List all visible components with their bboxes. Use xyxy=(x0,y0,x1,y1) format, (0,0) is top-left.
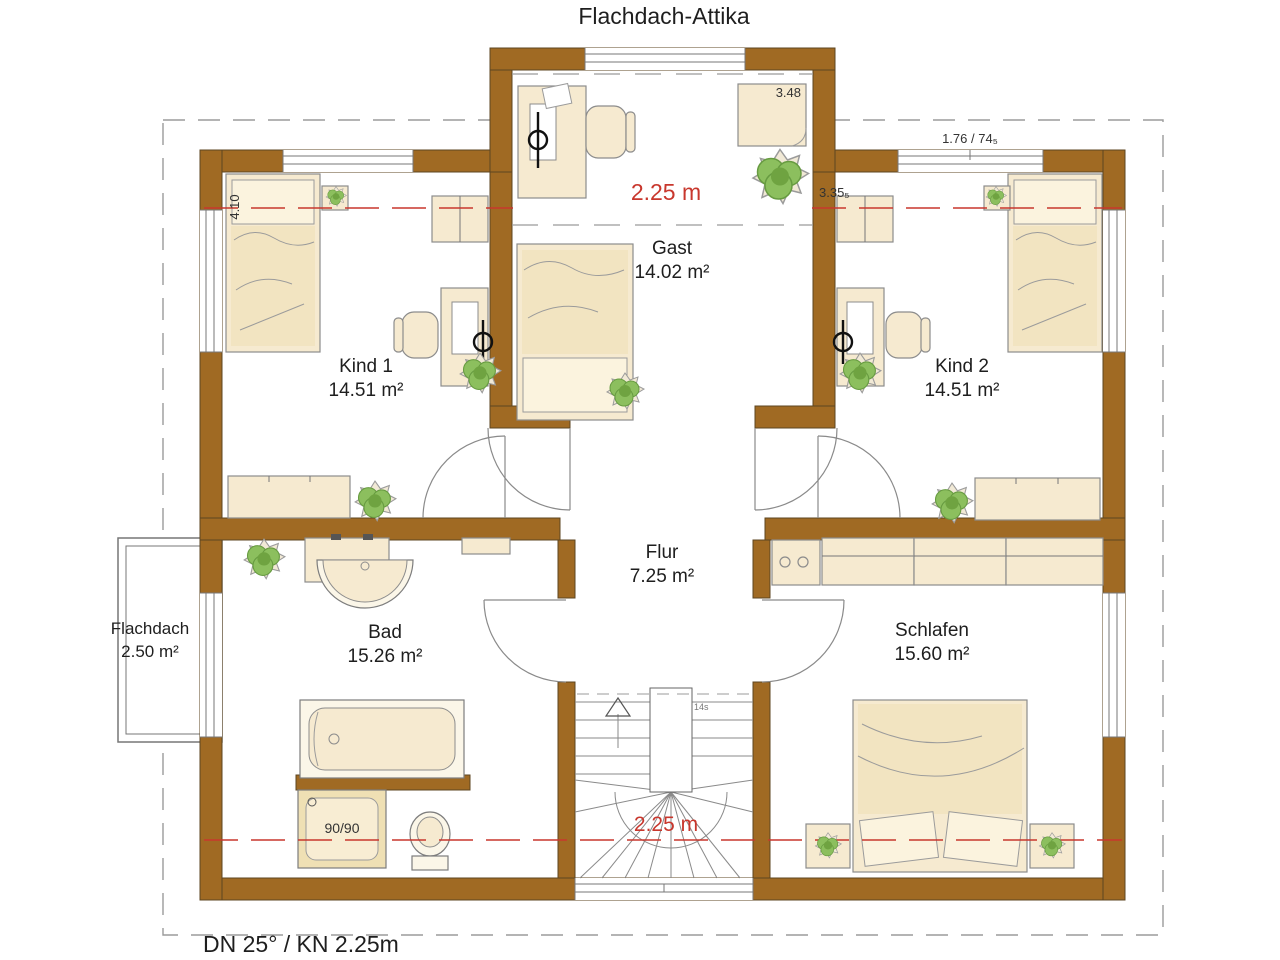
room-label-kind2-name: Kind 2 xyxy=(935,356,989,377)
door-gast-left xyxy=(488,428,570,510)
shelf-bad xyxy=(462,538,510,554)
floor-plan-page: Flachdach-Attika DN 25° / KN 2.25m Kind … xyxy=(0,0,1280,960)
sideboard-kind1 xyxy=(228,476,350,518)
chair-kind1 xyxy=(402,312,438,358)
chair-gast xyxy=(586,106,626,158)
room-label-gast-area: 14.02 m² xyxy=(635,262,710,283)
window-bad-left xyxy=(200,593,222,737)
room-label-schlafen-area: 15.60 m² xyxy=(895,644,970,665)
plant-icon-bad xyxy=(244,539,285,579)
up-arrow-icon xyxy=(606,698,630,748)
room-label-schlafen-name: Schlafen xyxy=(895,620,969,641)
sideboard-kind2 xyxy=(975,478,1100,520)
wardrobe-schlafen-2 xyxy=(914,538,1006,585)
room-label-flachdach-area: 2.50 m² xyxy=(121,642,179,661)
dim-kind2-wall: 3.35₅ xyxy=(819,185,850,200)
chair-kind2 xyxy=(886,312,922,358)
plant-icon-kind2-sideboard xyxy=(932,483,973,523)
furniture-schlafen xyxy=(772,538,1103,872)
room-label-gast-name: Gast xyxy=(652,238,693,259)
room-label-kind1-name: Kind 1 xyxy=(339,356,393,377)
dim-gast-closet: 3.48 xyxy=(776,85,801,100)
pillow-schlafen-right xyxy=(943,812,1022,867)
dim-shower: 90/90 xyxy=(324,820,359,836)
door-schlafen xyxy=(762,600,844,682)
dim-stair-steps: 14s xyxy=(694,702,709,712)
dim-kind1-depth: 4.10 xyxy=(227,194,242,219)
room-label-flur-name: Flur xyxy=(646,542,679,563)
window-dormer-top xyxy=(585,48,745,70)
room-label-flur-area: 7.25 m² xyxy=(630,566,694,587)
dresser-schlafen xyxy=(772,540,820,585)
furniture-kind1 xyxy=(226,174,492,518)
wardrobe-schlafen-1 xyxy=(822,538,914,585)
door-gast-right xyxy=(755,428,837,510)
floor-plan-canvas: Flachdach-Attika DN 25° / KN 2.25m Kind … xyxy=(0,0,1280,960)
height-line-label-top: 2.25 m xyxy=(631,179,701,205)
wardrobe-schlafen-3 xyxy=(1006,538,1103,585)
roof-spec-label: DN 25° / KN 2.25m xyxy=(203,931,399,957)
window-kind1-left xyxy=(200,210,222,352)
room-label-bad-area: 15.26 m² xyxy=(348,646,423,667)
pillow-kind2 xyxy=(1014,180,1096,224)
page-title: Flachdach-Attika xyxy=(578,3,750,29)
door-kind2 xyxy=(818,436,900,518)
door-kind1 xyxy=(423,436,505,518)
plant-icon-kind1-wall xyxy=(355,481,396,521)
pillow-schlafen-left xyxy=(859,812,938,867)
room-label-flachdach-name: Flachdach xyxy=(111,619,189,638)
window-kind1-top xyxy=(283,150,413,172)
window-stair-bottom xyxy=(575,878,753,900)
window-schlafen-right xyxy=(1103,593,1125,737)
room-label-bad-name: Bad xyxy=(368,622,402,643)
height-line-label-bottom: 2.25 m xyxy=(634,813,698,836)
window-kind2-right xyxy=(1103,210,1125,352)
window-kind2-top xyxy=(898,150,1043,172)
stairs xyxy=(575,688,753,878)
furniture-kind2 xyxy=(834,174,1102,520)
dim-kind2-window: 1.76 / 74₅ xyxy=(942,131,998,146)
stair-spine xyxy=(650,688,692,792)
door-bad xyxy=(484,600,566,682)
pillow-kind1 xyxy=(232,180,314,224)
room-label-kind2-area: 14.51 m² xyxy=(925,380,1000,401)
room-label-kind1-area: 14.51 m² xyxy=(329,380,404,401)
